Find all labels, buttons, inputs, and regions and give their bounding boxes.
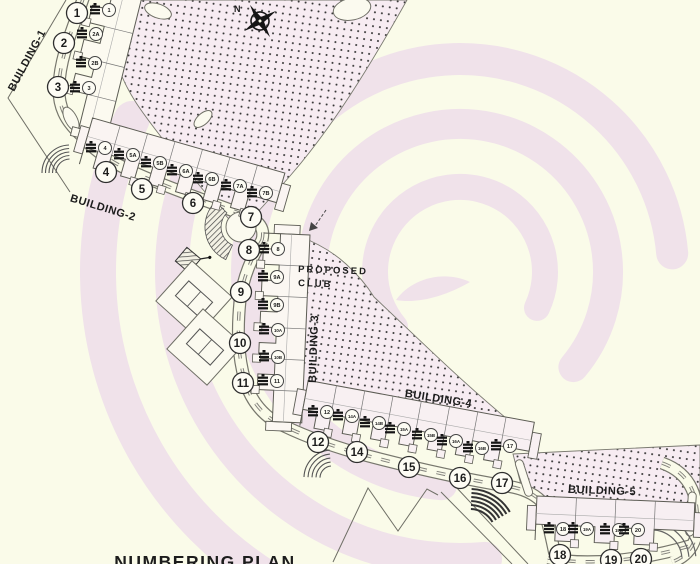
- svg-text:8: 8: [276, 247, 279, 253]
- svg-text:16A: 16A: [452, 439, 461, 444]
- svg-text:2: 2: [61, 38, 67, 50]
- building-5-label: BUILDING-5: [568, 484, 636, 498]
- svg-text:18: 18: [560, 527, 566, 533]
- svg-text:12: 12: [312, 437, 325, 449]
- svg-text:5A: 5A: [129, 153, 136, 159]
- compass-north-label: N: [234, 4, 241, 14]
- svg-text:5B: 5B: [156, 161, 163, 167]
- svg-text:15A: 15A: [400, 427, 409, 432]
- road-marker: 8: [239, 240, 260, 261]
- svg-text:4: 4: [103, 167, 110, 179]
- svg-text:6: 6: [190, 198, 196, 210]
- road-marker: 3: [48, 77, 69, 98]
- building-1-label: BUILDING-1: [6, 28, 48, 94]
- road-marker: 1: [67, 3, 88, 24]
- svg-text:9B: 9B: [273, 303, 280, 309]
- road-marker: 5: [132, 179, 153, 200]
- svg-text:10B: 10B: [274, 355, 282, 360]
- watermark-petal: [396, 276, 470, 301]
- svg-text:19: 19: [605, 555, 618, 564]
- site-plan-svg: 12A2B345A5B6A6B7A7B89A9B10A10B111214A14B…: [0, 0, 700, 564]
- svg-text:5: 5: [139, 184, 146, 196]
- svg-text:16B: 16B: [478, 446, 486, 451]
- ramp-arc: [49, 152, 69, 173]
- proposed-club-label-line2: CLUB: [298, 278, 333, 290]
- svg-text:9: 9: [238, 287, 244, 299]
- svg-text:17: 17: [496, 478, 509, 490]
- svg-text:17: 17: [507, 444, 513, 450]
- ramp-arc: [320, 466, 331, 478]
- svg-text:3: 3: [87, 86, 90, 92]
- page-title: NUMBERING PLAN: [114, 552, 295, 564]
- svg-text:14A: 14A: [348, 414, 357, 419]
- svg-text:7: 7: [248, 212, 254, 224]
- svg-text:20: 20: [635, 528, 641, 534]
- road-marker: 2: [54, 33, 75, 54]
- road-marker: 7: [241, 207, 262, 228]
- svg-text:8: 8: [246, 245, 253, 257]
- road-marker: 9: [231, 282, 252, 303]
- svg-text:15B: 15B: [427, 433, 435, 438]
- svg-text:14: 14: [351, 447, 364, 459]
- road-marker: 19: [601, 550, 622, 564]
- svg-text:18: 18: [554, 550, 567, 562]
- road-marker: 12: [308, 432, 329, 453]
- svg-text:7A: 7A: [236, 184, 243, 190]
- svg-text:2A: 2A: [92, 32, 99, 38]
- road-marker: 17: [492, 473, 513, 494]
- svg-text:20: 20: [635, 554, 648, 564]
- svg-text:11: 11: [237, 378, 250, 390]
- road-marker: 20: [631, 549, 652, 564]
- svg-text:2B: 2B: [91, 61, 98, 67]
- watermark-arc: [375, 187, 545, 327]
- ramp-arc: [56, 159, 70, 173]
- svg-text:6B: 6B: [208, 177, 215, 183]
- svg-text:3: 3: [55, 82, 61, 94]
- svg-text:11: 11: [274, 379, 280, 385]
- unit-marker: 2A: [77, 27, 103, 41]
- road-marker: 11: [233, 373, 254, 394]
- road-marker: 18: [550, 545, 571, 564]
- svg-text:6A: 6A: [182, 169, 189, 175]
- road-marker: 16: [450, 468, 471, 489]
- numbering-plan-page: 12A2B345A5B6A6B7A7B89A9B10A10B111214A14B…: [0, 0, 700, 564]
- road-marker: 4: [96, 162, 117, 183]
- svg-text:1: 1: [107, 8, 110, 14]
- svg-text:14B: 14B: [375, 421, 383, 426]
- svg-text:10A: 10A: [274, 328, 283, 333]
- building-3-label: BUILDING-3: [307, 315, 321, 383]
- svg-text:15: 15: [403, 462, 416, 474]
- svg-text:19A: 19A: [583, 527, 592, 532]
- svg-text:10: 10: [234, 338, 247, 350]
- road-marker: 10: [230, 333, 251, 354]
- svg-text:9A: 9A: [273, 275, 280, 281]
- svg-text:12: 12: [324, 410, 330, 416]
- svg-text:1: 1: [74, 8, 81, 20]
- svg-text:7B: 7B: [262, 191, 269, 197]
- road-marker: 15: [399, 457, 420, 478]
- svg-text:16: 16: [454, 473, 467, 485]
- road-marker: 14: [347, 442, 368, 463]
- road-marker: 6: [183, 193, 204, 214]
